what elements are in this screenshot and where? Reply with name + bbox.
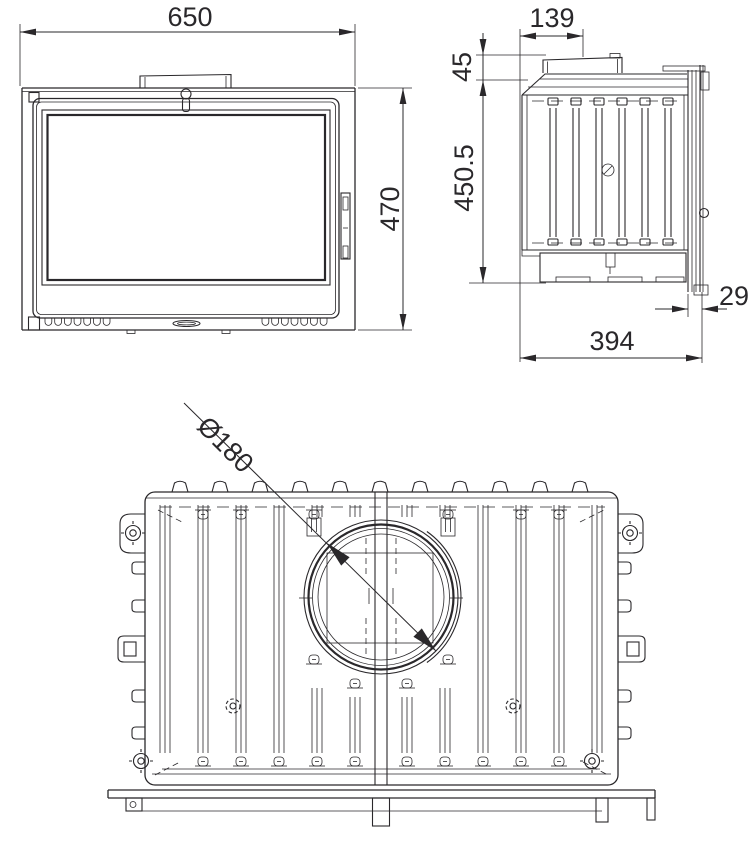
top-plate [118,481,645,785]
flue-collar-side [543,54,622,74]
dim-45-label: 45 [447,52,477,82]
top-tabs [172,481,588,492]
base-plate [108,790,655,826]
dim-diameter-180-label: Ø180 [191,411,259,479]
top-ribs [160,505,602,753]
arrowhead [480,39,487,55]
arrowhead [400,314,407,330]
arrowhead [400,88,407,104]
door-window-glass [48,115,326,280]
dim-394-label: 394 [589,326,634,356]
arrowhead [672,306,688,313]
arrowhead [520,33,536,40]
arrowhead [567,33,583,40]
technical-drawing-canvas: 650 470 [0,0,754,846]
arrowhead [702,306,718,313]
air-control-knob [181,89,191,112]
stove-dimension-drawing: 650 470 [0,0,754,846]
top-view: Ø180 [108,403,655,826]
arrowhead [520,355,536,362]
hinge-block-bottom [29,317,40,330]
dim-394: 394 [520,326,702,361]
corner-bolt [129,749,153,773]
base-foot-center [373,798,390,826]
rotation-symbol [602,164,614,176]
dim-650: 650 [20,2,355,86]
center-divider [369,492,393,785]
dim-450-5-label: 450.5 [449,144,479,212]
dim-139-label: 139 [529,3,574,33]
side-tabs-right [618,562,645,739]
dim-139: 139 [520,3,583,39]
side-tabs-left [118,562,145,739]
plate-clips [195,510,567,766]
front-view: 650 470 [20,2,412,334]
flue-collar-front [140,75,231,89]
arrowhead [20,29,36,36]
door-window-frame [42,110,330,285]
base-foot-right [596,798,608,822]
convection-fins [548,98,673,245]
rosette-knob [506,699,520,713]
hinge-block-top [29,93,39,103]
arrowhead [686,355,702,362]
side-body [522,54,709,296]
latch-knob-side [700,209,709,218]
front-body [22,75,355,334]
side-view: 139 45 450.5 394 29 [447,3,749,363]
dim-470-label: 470 [375,186,405,231]
base-foot-end [647,798,655,820]
latch-handle-oval [173,321,200,327]
arrowhead [339,29,355,36]
arrowhead [480,80,487,96]
base-foot-left [126,798,142,811]
damper-plate [327,553,433,643]
dim-470: 470 [358,88,412,330]
rosette-knob [226,699,240,713]
corner-bolt [618,521,642,545]
dim-650-label: 650 [167,2,212,32]
corner-bolt [121,521,145,545]
dim-450-5: 450.5 [449,144,486,283]
ash-pan [522,250,686,282]
arrowhead [480,267,487,283]
door-latch [341,193,350,259]
dim-29-label: 29 [719,281,749,311]
